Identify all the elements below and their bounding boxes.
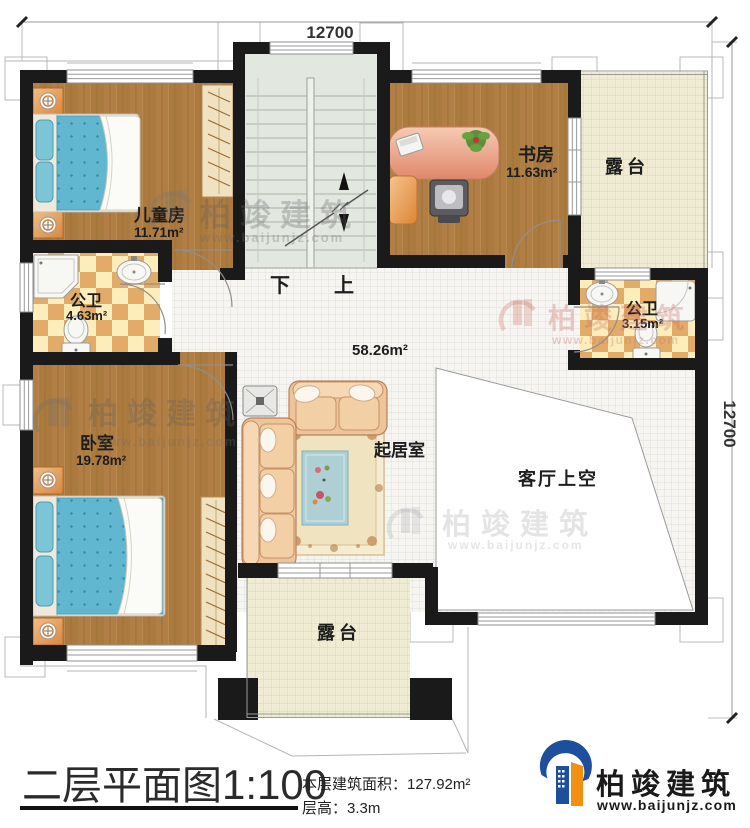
title-block: 二层平面图 1:100 本层建筑面积：127.92m² 层高：3.3m 柏竣建筑… [20,740,737,817]
window [67,645,197,661]
floor-height-label: 层高： [302,800,347,817]
svg-text:www.baijunjz.com: www.baijunjz.com [551,333,680,347]
living-room-area: 58.26m² [352,342,408,359]
void-label: 客厅上空 [518,468,598,489]
window [595,268,650,280]
dimension-right: 12700 [720,400,739,447]
window [20,380,33,430]
brand-logo-icon [540,740,592,806]
window [67,70,193,83]
bedroom-area: 19.78m² [76,453,127,468]
dimension-top: 12700 [306,23,353,42]
terrace-top-label: 露台 [605,156,649,177]
floor-area-label: 本层建筑面积： [302,776,407,793]
brand-name: 柏竣建筑 [596,767,736,801]
sliding-door [278,563,392,578]
floorplan-drawing: 儿童房 11.71m² 书房 11.63m² 露台 公卫 4.63m² 公卫 3… [0,0,750,828]
study-label: 书房 [518,144,554,165]
study-area: 11.63m² [506,164,558,180]
living-room-label: 起居室 [373,440,425,460]
tv-speaker [243,386,277,416]
window [478,613,655,625]
floor-area-value: 127.92m² [407,776,470,793]
floor-height-value: 3.3m [347,800,380,817]
study-chair [389,176,417,224]
svg-text:柏竣建筑: 柏竣建筑 [548,302,692,334]
svg-text:层高：3.3m: 层高：3.3m [302,800,380,817]
sofa-two-seat [289,381,387,435]
svg-text:柏竣建筑: 柏竣建筑 [200,198,360,233]
window [20,263,33,312]
rug [284,421,384,555]
children-room-area: 11.71m² [134,225,184,240]
terrace-bottom-floor [247,578,410,718]
floorplan-page: 儿童房 11.71m² 书房 11.63m² 露台 公卫 4.63m² 公卫 3… [0,0,750,828]
svg-text:本层建筑面积：127.92m²: 本层建筑面积：127.92m² [302,776,470,793]
svg-text:www.baijunjz.com: www.baijunjz.com [199,230,344,245]
title-underline [20,806,298,810]
stairs-down-label: 下 [270,275,290,297]
terrace-bottom-label: 露台 [317,622,361,643]
svg-text:www.baijunjz.com: www.baijunjz.com [447,538,584,552]
brand-url: www.baijunjz.com [596,797,737,813]
bath-left-area: 4.63m² [66,308,108,323]
window [270,42,353,54]
svg-text:www.baijunjz.com: www.baijunjz.com [97,435,238,449]
window [568,118,581,215]
svg-text:柏竣建筑: 柏竣建筑 [88,397,244,431]
living-room-furniture [242,381,387,568]
bedroom-door-vestibule [176,352,225,365]
sofa-three-seat [242,418,296,568]
stairs-up-label: 上 [334,274,354,297]
svg-text:柏竣建筑: 柏竣建筑 [442,507,598,541]
window [412,70,541,83]
children-room-label: 儿童房 [133,205,185,225]
plan-title: 二层平面图 [22,764,222,808]
